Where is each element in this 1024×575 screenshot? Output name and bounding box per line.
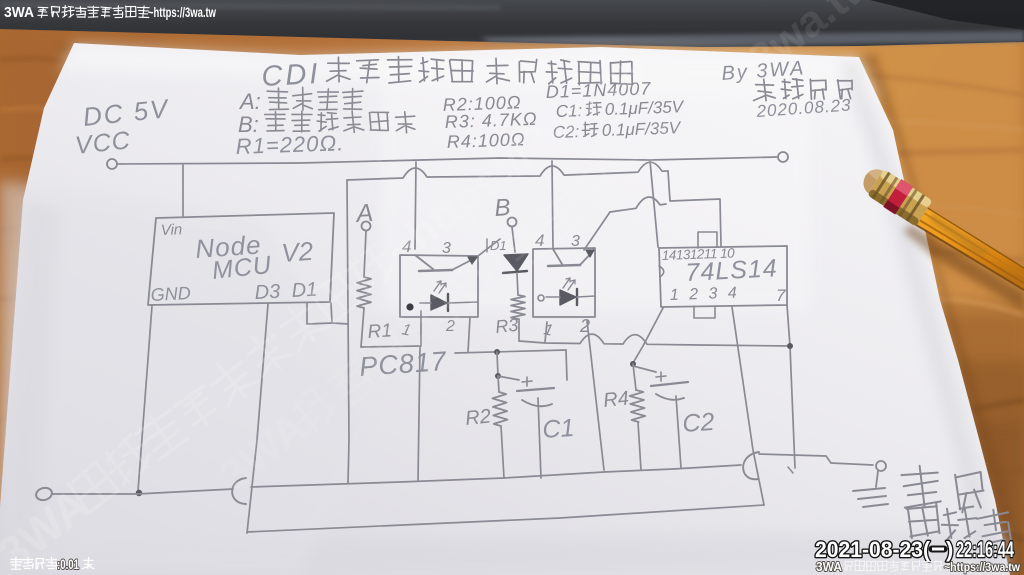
svg-text:VCC: VCC [74,126,132,160]
svg-text:A: A [353,199,374,228]
svg-text:~https://3wa.tw: ~https://3wa.tw [944,560,1021,574]
svg-text:7: 7 [776,286,786,305]
svg-text:1 2 3 4: 1 2 3 4 [670,285,740,304]
svg-text:22:16:44: 22:16:44 [956,537,1014,562]
svg-text:3: 3 [571,233,580,250]
svg-text:A:: A: [238,89,261,114]
svg-text:D3: D3 [254,281,281,304]
svg-text:R2: R2 [464,405,492,430]
svg-text:R1=220Ω.: R1=220Ω. [235,130,344,159]
svg-text:C1: C1 [541,414,575,444]
svg-text:R3: R3 [494,315,519,337]
svg-text:2021-08-23(: 2021-08-23( [815,537,931,562]
svg-text:Vin: Vin [161,221,183,239]
svg-text:~https://3wa.tw: ~https://3wa.tw [148,5,216,20]
svg-text:3WA: 3WA [816,560,842,574]
svg-text:C2: C2 [681,408,715,438]
svg-text:3WA: 3WA [4,5,35,21]
svg-text:V2: V2 [280,236,314,268]
svg-text::0.01: :0.01 [57,557,79,572]
svg-text:74LS14: 74LS14 [685,254,779,287]
svg-text:CDI: CDI [261,58,322,93]
svg-text:): ) [946,537,953,562]
svg-text:GND: GND [150,283,191,305]
svg-text:R4: R4 [602,387,630,412]
